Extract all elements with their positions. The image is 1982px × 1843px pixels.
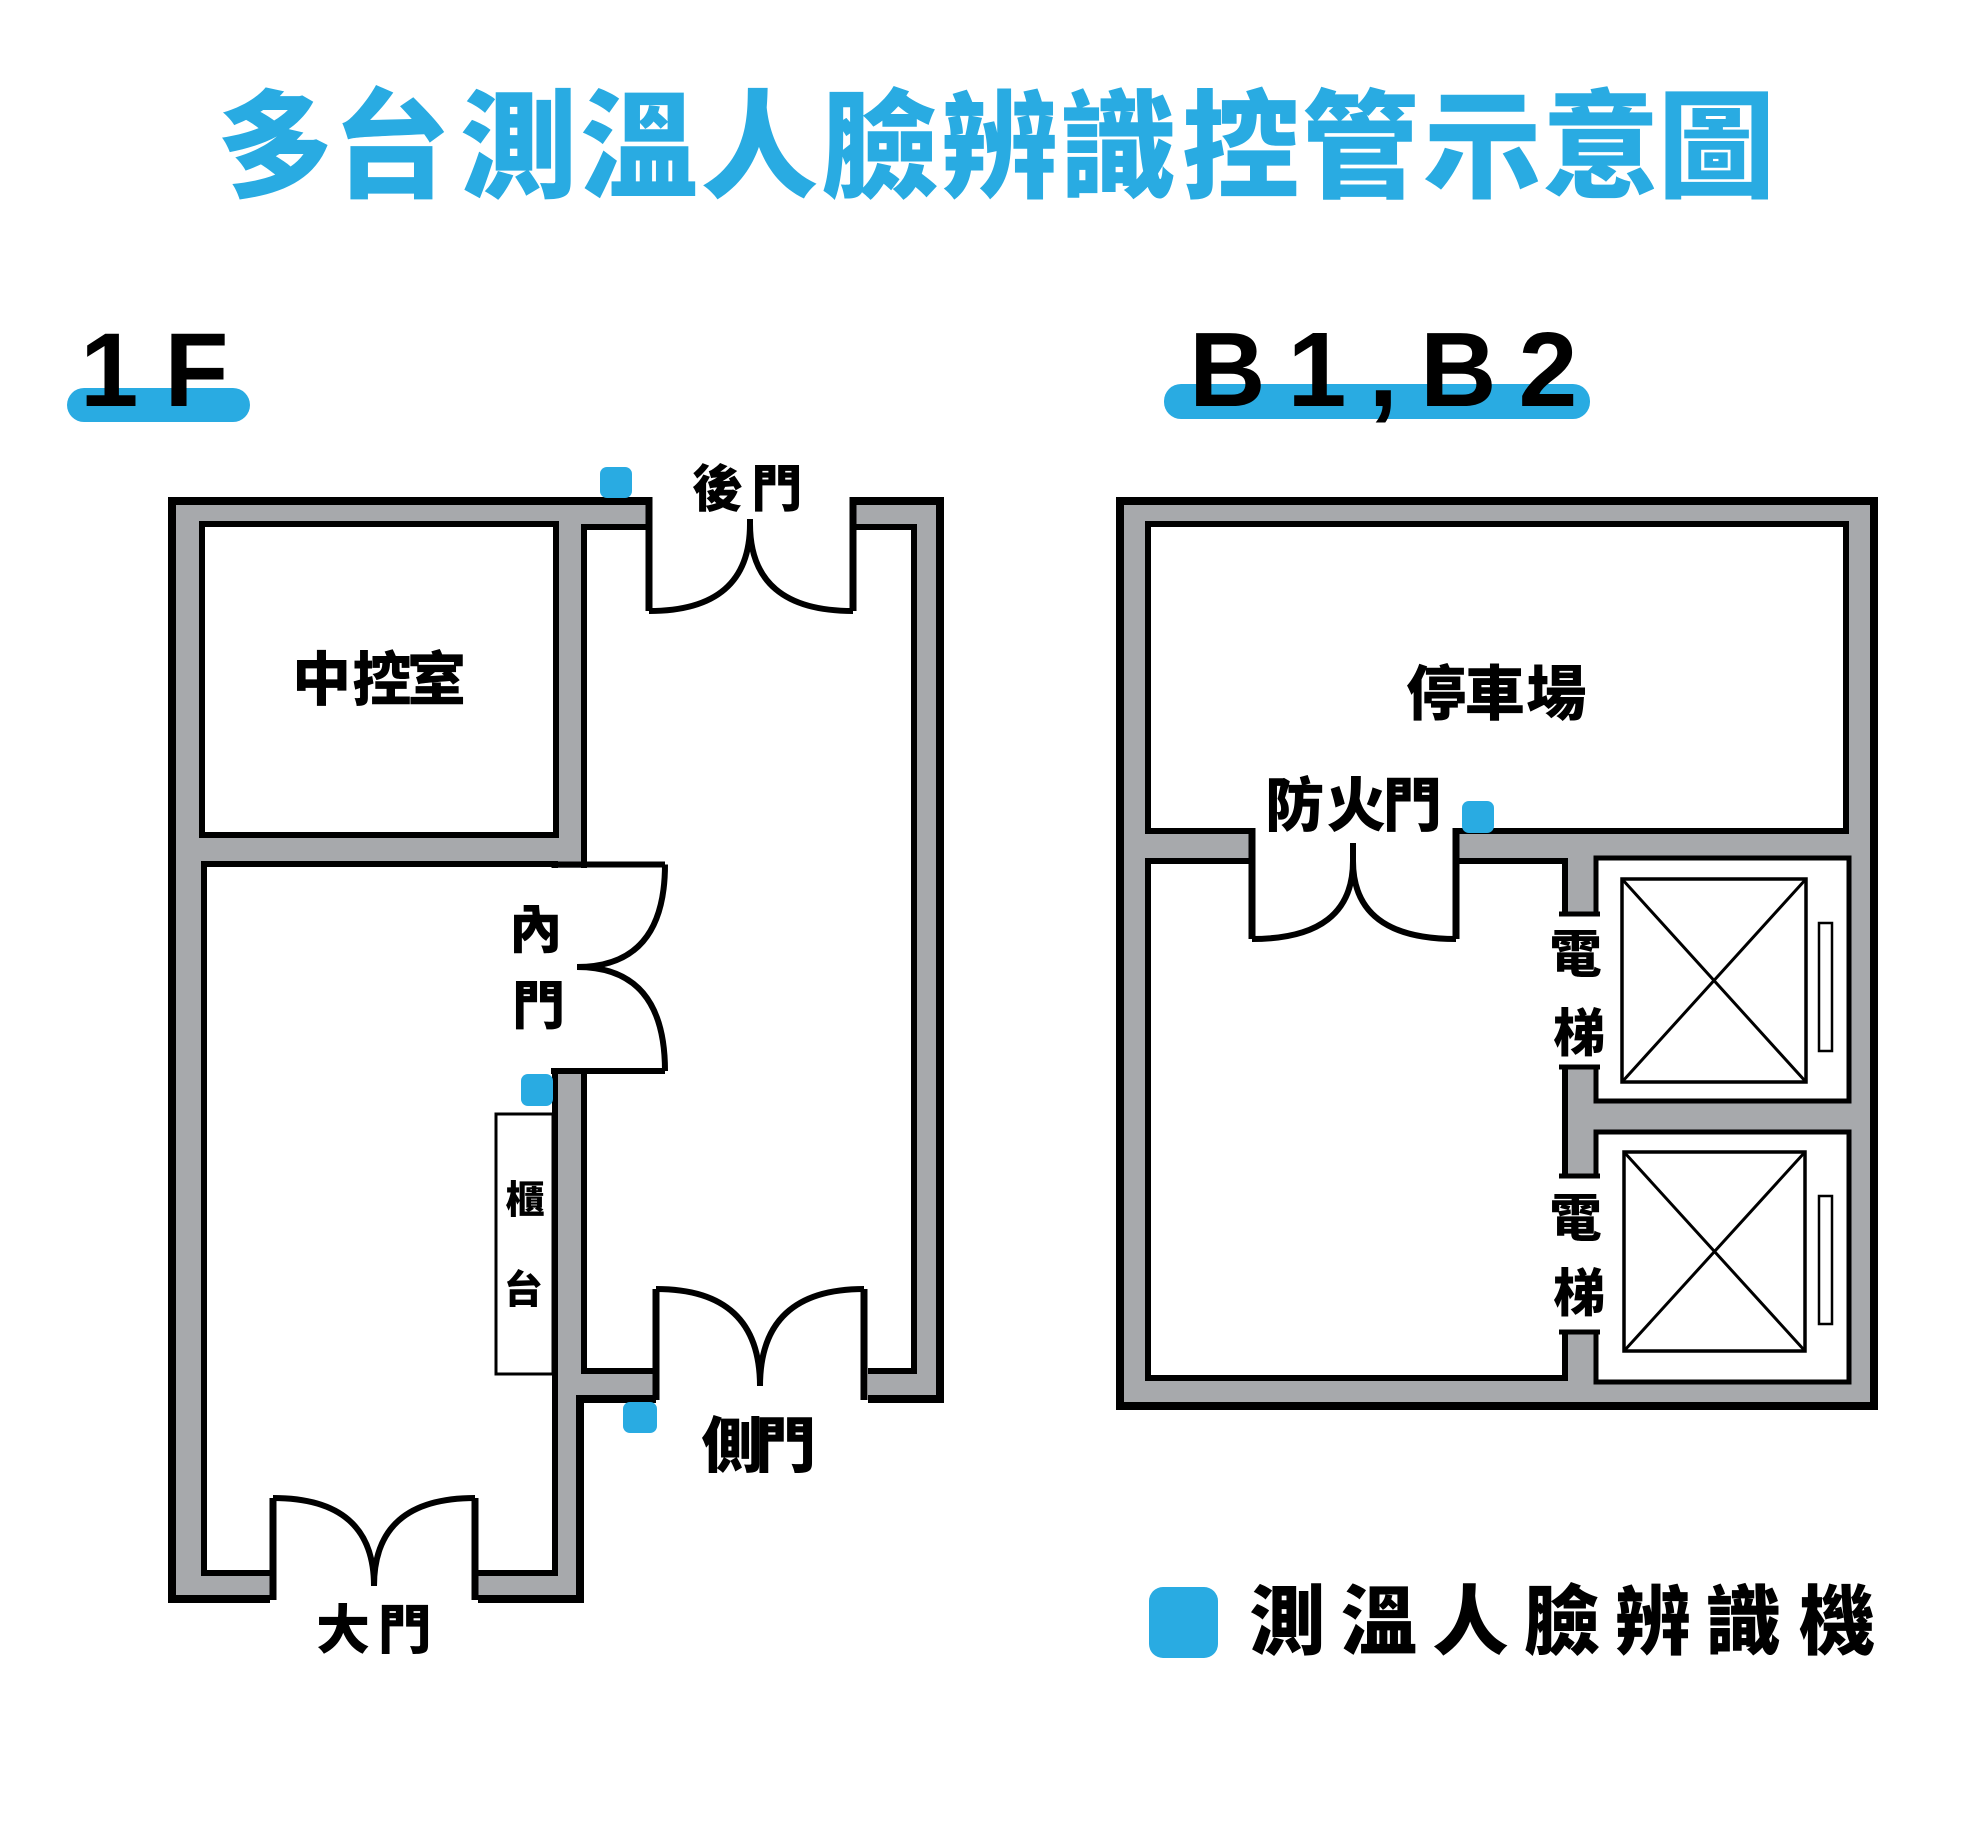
- svg-text:B1,B2: B1,B2: [1189, 311, 1599, 429]
- svg-text:1F: 1F: [80, 312, 255, 429]
